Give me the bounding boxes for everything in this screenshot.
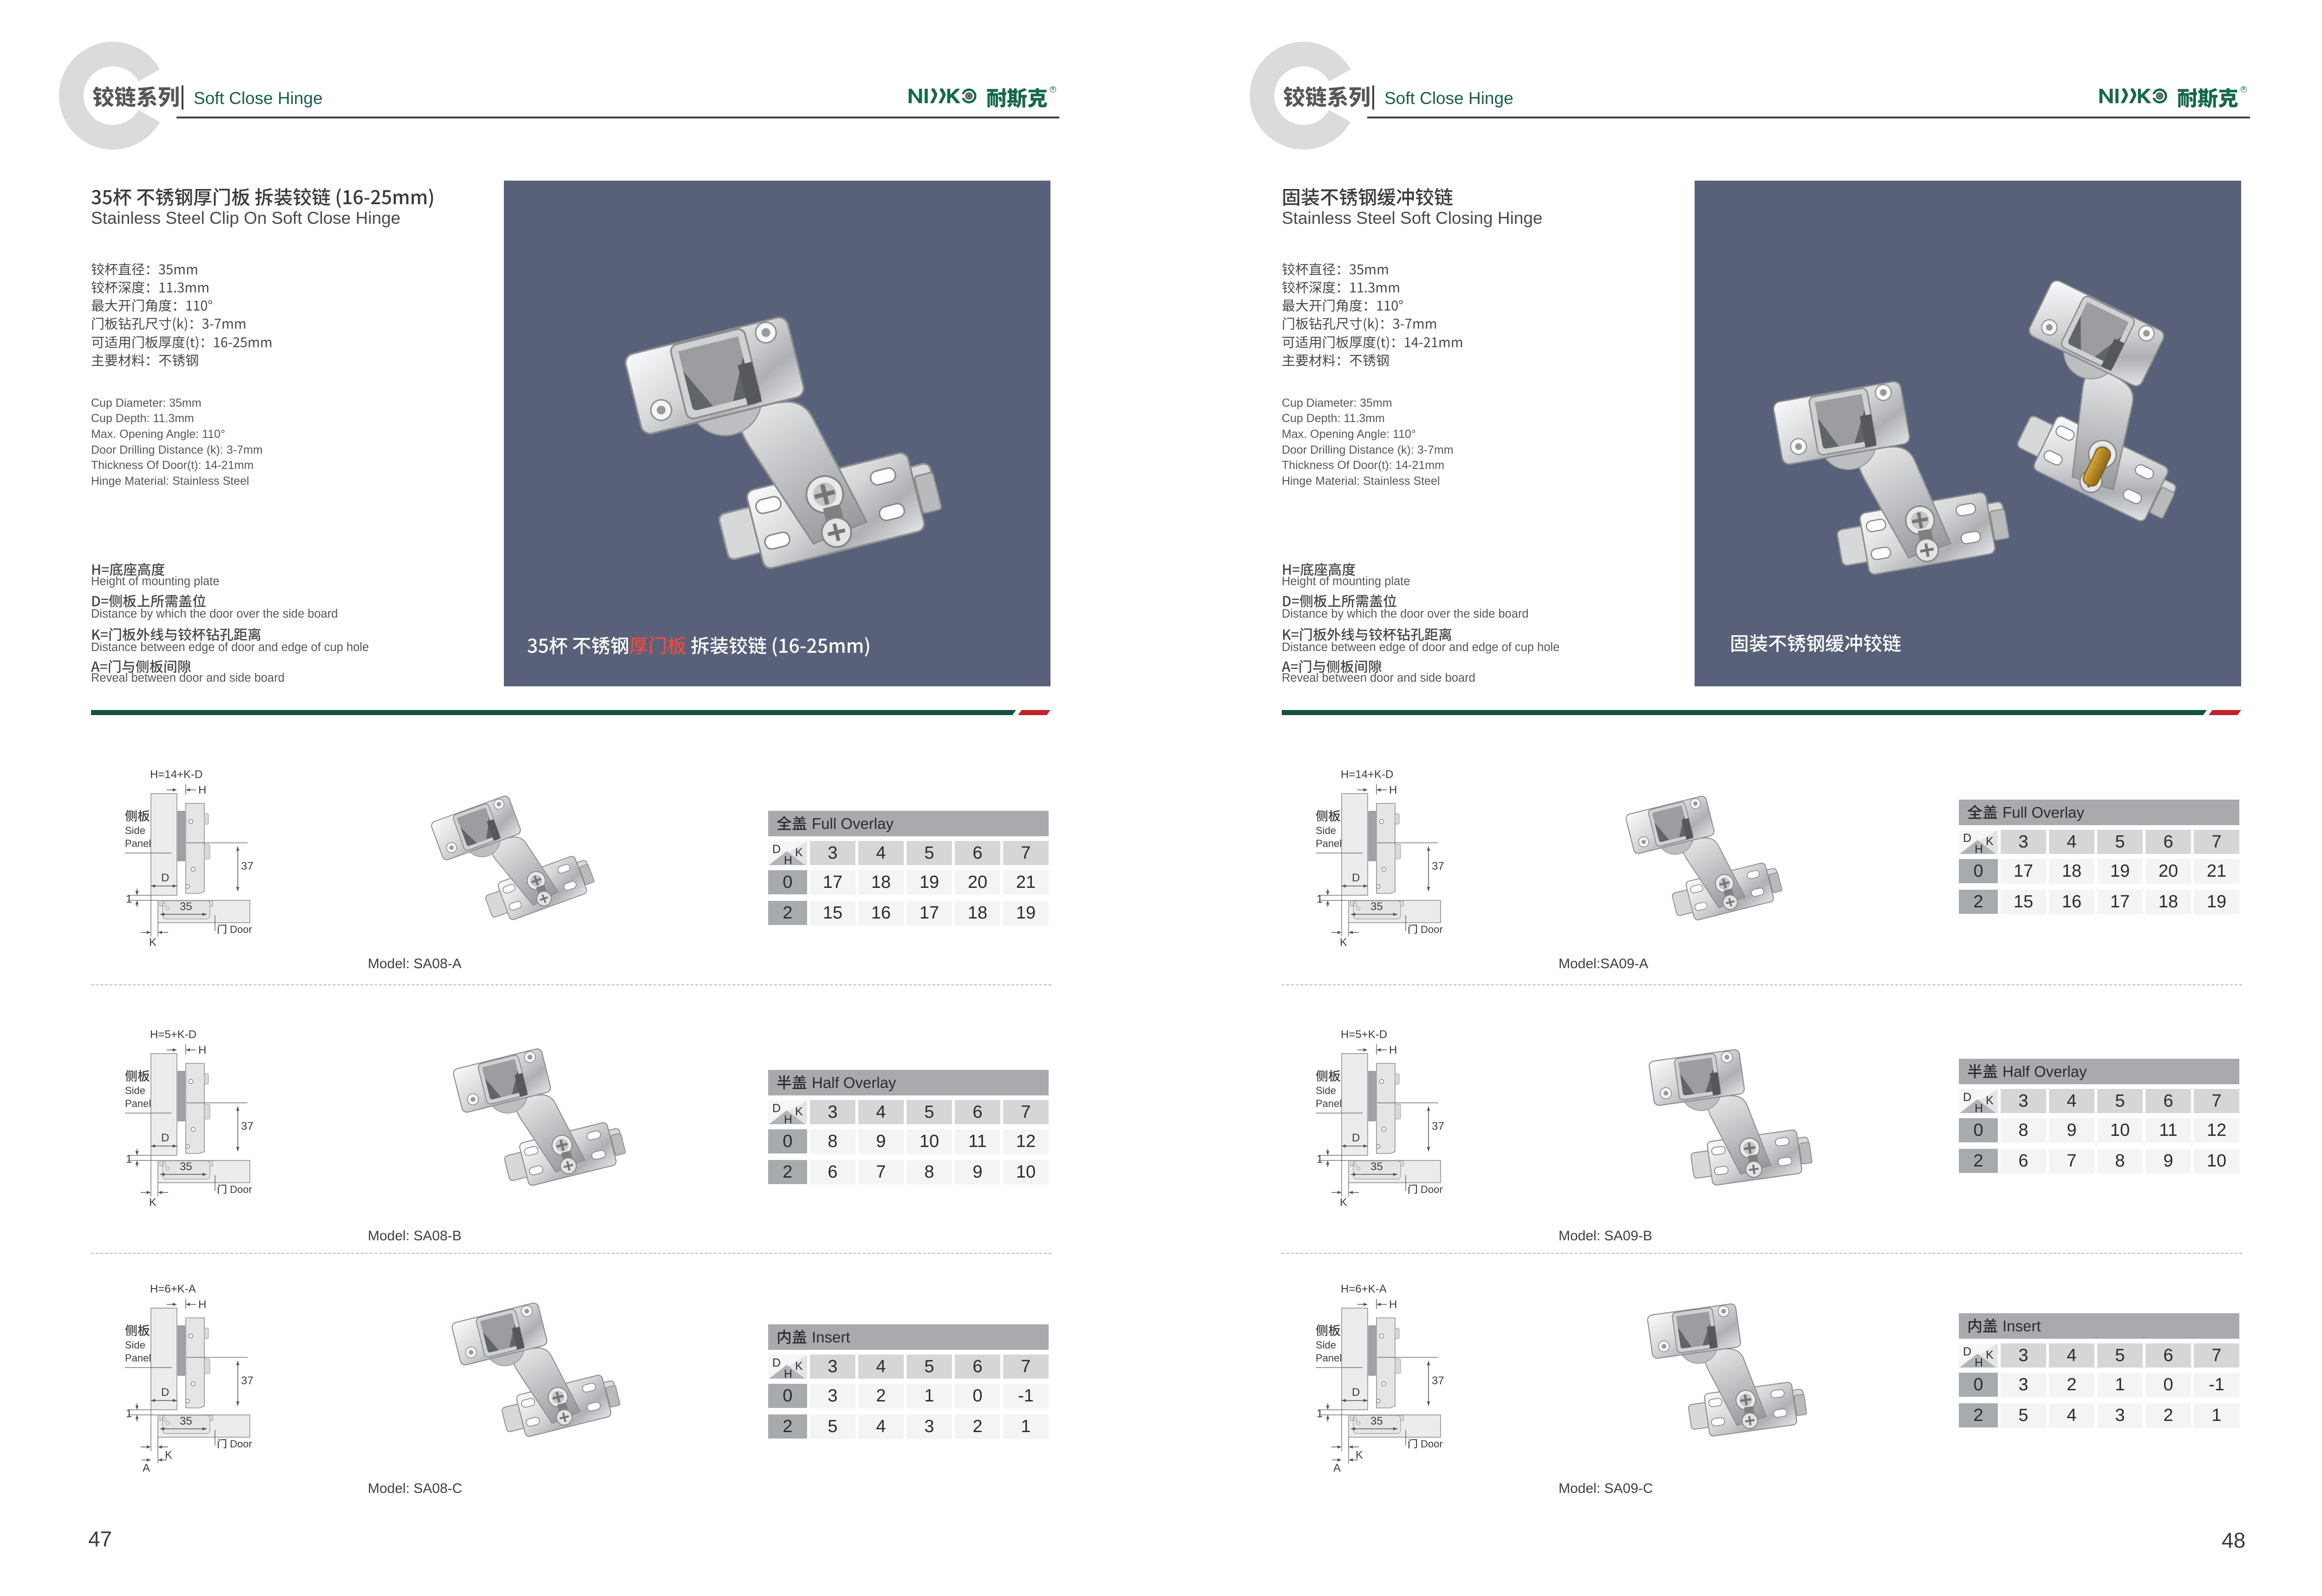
svg-text:37: 37: [241, 860, 254, 873]
svg-text:37: 37: [1432, 1375, 1444, 1387]
svg-text:Panel: Panel: [1316, 838, 1342, 849]
svg-text:K: K: [1356, 1449, 1363, 1461]
svg-text:1: 1: [126, 1407, 132, 1420]
svg-text:H=5+K-D: H=5+K-D: [150, 1029, 196, 1041]
svg-text:H=14+K-D: H=14+K-D: [1341, 769, 1393, 781]
svg-text:H: H: [1389, 784, 1397, 796]
svg-text:K: K: [1986, 1094, 1994, 1107]
svg-text:35: 35: [1370, 900, 1383, 913]
svg-text:Panel: Panel: [1316, 1352, 1342, 1364]
svg-text:H=6+K-A: H=6+K-A: [150, 1283, 196, 1296]
svg-text:H: H: [784, 854, 792, 865]
svg-text:Door: Door: [230, 1184, 252, 1195]
svg-text:1: 1: [126, 1153, 132, 1166]
svg-text:K: K: [795, 846, 803, 859]
svg-text:1: 1: [1317, 1407, 1323, 1420]
svg-text:Door: Door: [1421, 1438, 1443, 1450]
svg-text:D: D: [1963, 1091, 1971, 1104]
svg-text:Door: Door: [230, 924, 252, 935]
svg-text:H: H: [784, 1113, 792, 1124]
svg-text:H=6+K-A: H=6+K-A: [1341, 1283, 1387, 1296]
svg-text:K: K: [1340, 1196, 1347, 1209]
svg-text:Side: Side: [1316, 1085, 1336, 1096]
svg-text:H: H: [198, 784, 206, 796]
svg-text:Side: Side: [125, 825, 145, 836]
svg-text:H: H: [784, 1368, 792, 1379]
svg-text:D: D: [161, 872, 169, 884]
svg-text:K: K: [149, 936, 157, 949]
svg-text:D: D: [772, 1356, 781, 1369]
svg-text:A: A: [1333, 1462, 1341, 1474]
svg-text:35: 35: [1370, 1160, 1383, 1173]
svg-text:37: 37: [1432, 1120, 1444, 1133]
svg-text:Door: Door: [230, 1438, 252, 1450]
svg-text:D: D: [161, 1386, 169, 1399]
svg-text:D: D: [1352, 1132, 1360, 1144]
svg-text:Side: Side: [125, 1085, 145, 1096]
svg-text:H=14+K-D: H=14+K-D: [150, 769, 202, 781]
svg-text:D: D: [161, 1132, 169, 1144]
svg-text:K: K: [165, 1449, 172, 1461]
svg-text:H: H: [1389, 1298, 1397, 1311]
svg-text:D: D: [1352, 1386, 1360, 1399]
svg-text:H: H: [198, 1298, 206, 1311]
svg-text:35: 35: [180, 900, 192, 913]
svg-text:Door: Door: [1421, 1184, 1443, 1195]
svg-text:35: 35: [180, 1415, 192, 1427]
svg-text:K: K: [149, 1196, 157, 1209]
svg-text:D: D: [1963, 1345, 1971, 1358]
svg-text:K: K: [795, 1360, 803, 1373]
svg-text:1: 1: [1317, 1153, 1323, 1166]
svg-text:H: H: [1975, 843, 1983, 854]
svg-text:Panel: Panel: [125, 1352, 151, 1364]
svg-text:H: H: [1975, 1102, 1983, 1113]
svg-text:H: H: [1975, 1356, 1983, 1368]
svg-text:Panel: Panel: [125, 838, 151, 849]
svg-text:D: D: [1352, 872, 1360, 884]
svg-text:35: 35: [1370, 1415, 1383, 1427]
svg-text:K: K: [795, 1105, 803, 1118]
svg-text:D: D: [772, 1102, 781, 1115]
svg-text:K: K: [1340, 936, 1347, 949]
svg-text:1: 1: [126, 893, 132, 905]
svg-text:Door: Door: [1421, 924, 1443, 935]
svg-text:H=5+K-D: H=5+K-D: [1341, 1029, 1387, 1041]
svg-text:37: 37: [241, 1375, 254, 1387]
svg-text:37: 37: [1432, 860, 1444, 873]
svg-text:Side: Side: [125, 1339, 145, 1351]
svg-text:K: K: [1986, 1348, 1994, 1361]
svg-text:1: 1: [1317, 893, 1323, 905]
svg-text:D: D: [772, 843, 781, 856]
svg-text:K: K: [1986, 835, 1994, 848]
svg-text:H: H: [198, 1044, 206, 1056]
svg-text:Panel: Panel: [125, 1098, 151, 1109]
svg-text:35: 35: [180, 1160, 192, 1173]
svg-text:A: A: [143, 1462, 150, 1474]
svg-text:Side: Side: [1316, 1339, 1336, 1351]
svg-text:D: D: [1963, 832, 1971, 845]
svg-text:Panel: Panel: [1316, 1098, 1342, 1109]
svg-text:Side: Side: [1316, 825, 1336, 836]
svg-text:H: H: [1389, 1044, 1397, 1056]
svg-text:37: 37: [241, 1120, 254, 1133]
